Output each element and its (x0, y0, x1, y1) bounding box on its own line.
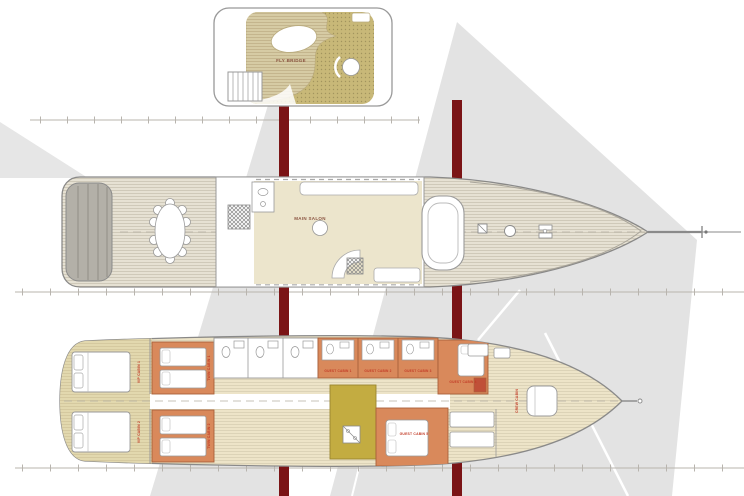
lower-corridor (150, 394, 450, 409)
fly-bridge-console (352, 13, 370, 22)
salon-sofa-top (300, 182, 418, 195)
yacht-deck-plan-drawing: FLY BRIDGE (0, 0, 744, 496)
fly-bridge-plan: FLY BRIDGE (214, 8, 392, 106)
forward-cockpit-lounge (422, 196, 464, 270)
fly-bridge-label: FLY BRIDGE (276, 58, 306, 63)
twin-cabin-1-label: TWIN CABIN 1 (207, 355, 211, 381)
fly-bridge-stairs (228, 72, 262, 101)
vip-cabin-2-label: VIP CABIN 2 (137, 421, 141, 443)
stern-swim-platform (66, 183, 112, 281)
vip-cabin-1 (72, 352, 130, 392)
bathroom-cells (214, 338, 318, 378)
fly-bridge-seat (343, 59, 360, 76)
salon-stairs-down (347, 258, 363, 274)
aft-deck-dining-table (150, 199, 191, 264)
vip-cabin-1-label: VIP CABIN 1 (137, 361, 141, 383)
guest-cabin-3-label: GUEST CABIN 3 (404, 369, 431, 373)
stern-sail-wedge (0, 122, 88, 178)
guest-cabin-4-label: GUEST CABIN 4 (449, 380, 476, 384)
deckhouse: MAIN SALON (216, 177, 424, 287)
twin-cabin-2-label: TWIN CABIN 2 (207, 423, 211, 449)
guest-cabin-2-label: GUEST CABIN 2 (364, 369, 391, 373)
guest-cabin-5 (376, 408, 448, 466)
galley (330, 385, 376, 459)
salon-sideboard (374, 268, 420, 282)
guest-cabin-5-label: GUEST CABIN 5 (400, 432, 429, 436)
guest-cabin-1-label: GUEST CABIN 1 (324, 369, 351, 373)
forepeak-berth (527, 386, 557, 416)
capstan (505, 226, 516, 237)
main-salon-label: MAIN SALON (294, 216, 326, 221)
deck-plan-canvas: FLY BRIDGE (0, 0, 744, 496)
crew-cabin-label: CREW CABIN (515, 389, 519, 413)
galley-counter (252, 182, 274, 212)
salon-table (313, 221, 328, 236)
twin-cabin-2 (152, 410, 214, 462)
vip-cabin-2 (72, 412, 130, 452)
twin-cabin-1 (152, 342, 214, 394)
companionway-stairs (228, 205, 250, 229)
